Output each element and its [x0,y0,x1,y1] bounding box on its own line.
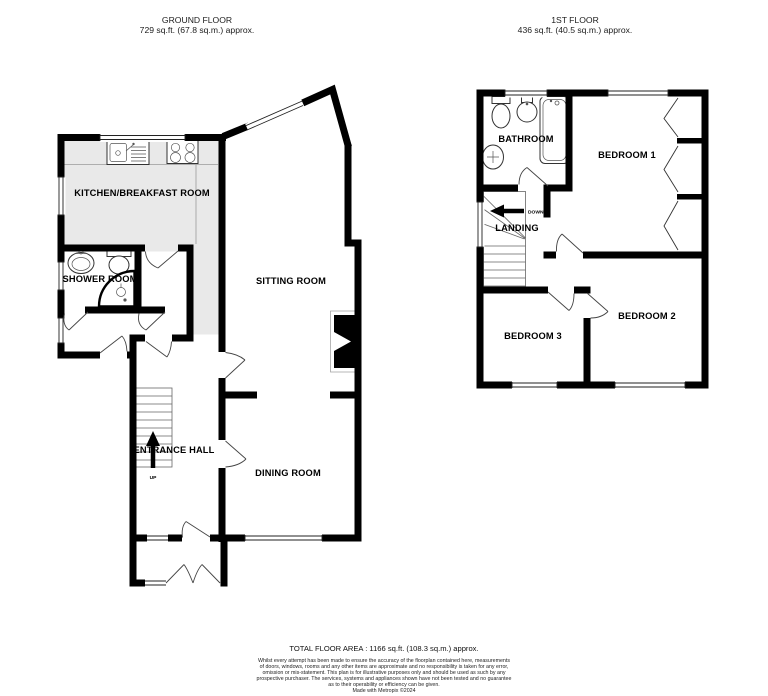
bathroom-label: BATHROOM [498,134,553,144]
first-floor-title: 1ST FLOOR [551,15,599,25]
kitchen-sink-icon [107,141,149,165]
bedroom2-window [615,381,685,389]
dining-room-window [245,534,322,542]
bathtub-icon [540,97,569,164]
bedroom1-label: BEDROOM 1 [598,150,656,160]
bathroom-window [505,89,547,98]
bathroom-basin-icon [483,145,504,169]
fireplace-icon [331,311,356,372]
dining-room-label: DINING ROOM [255,468,321,478]
ground-floor-plan: KITCHEN/BREAKFAST ROOM SHOWER ROOM SITTI… [57,88,362,587]
bedroom2-label: BEDROOM 2 [618,311,676,321]
shower-room-label: SHOWER ROOM [63,274,138,284]
credit-line: Made with Metropix ©2024 [352,687,415,694]
down-label: DOWN [528,210,544,216]
bathroom-toilet-icon [492,97,510,129]
kitchen-label: KITCHEN/BREAKFAST ROOM [74,188,210,198]
first-floor-area: 436 sq.ft. (40.5 sq.m.) approx. [518,25,633,35]
first-floor-plan: BATHROOM LANDING DOWN BEDROOM 1 BEDROOM … [476,89,709,390]
total-floor-area: TOTAL FLOOR AREA : 1166 sq.ft. (108.3 sq… [289,644,478,653]
sitting-room-label: SITTING ROOM [256,276,326,286]
ground-floor-title: GROUND FLOOR [162,15,232,25]
entrance-hall-label: ENTRANCE HALL [134,445,215,455]
ground-floor-header: GROUND FLOOR 729 sq.ft. (67.8 sq.m.) app… [140,15,255,35]
kitchen-window [100,133,185,142]
ground-floor-area: 729 sq.ft. (67.8 sq.m.) approx. [140,25,255,35]
floorplan-page: GROUND FLOOR 729 sq.ft. (67.8 sq.m.) app… [0,0,768,696]
up-label: UP [150,475,158,481]
bedroom1-window [608,89,668,98]
first-floor-header: 1ST FLOOR 436 sq.ft. (40.5 sq.m.) approx… [518,15,633,35]
landing-label: LANDING [495,223,538,233]
bedroom3-label: BEDROOM 3 [504,331,562,341]
kitchen-side-window [57,177,66,215]
hob-icon [167,141,198,164]
footer: TOTAL FLOOR AREA : 1166 sq.ft. (108.3 sq… [257,644,512,694]
shower-room-toilet-icon [107,249,131,275]
bedroom3-window [512,381,557,389]
floorplan-canvas: GROUND FLOOR 729 sq.ft. (67.8 sq.m.) app… [0,0,768,696]
landing-window [476,202,485,247]
